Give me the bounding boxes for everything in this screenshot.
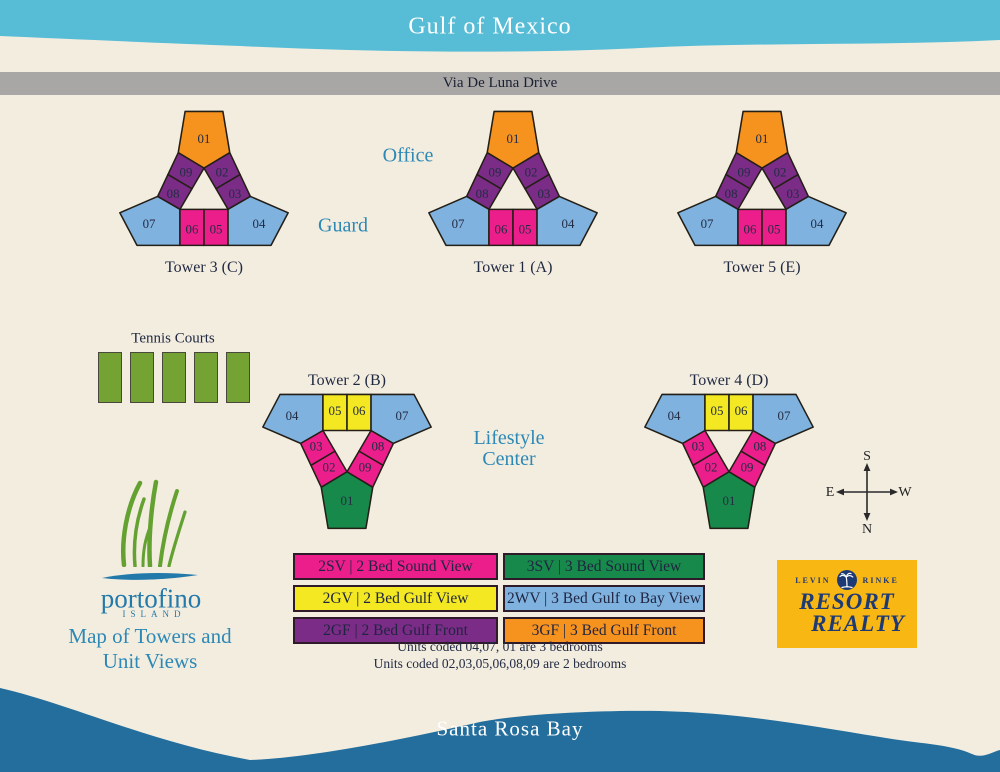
tower-name: Tower 1 (A) (474, 259, 553, 277)
unit-number: 02 (323, 461, 336, 475)
compass-east: E (826, 485, 835, 500)
unit-number: 09 (741, 461, 754, 475)
unit-number: 03 (310, 439, 323, 453)
unit-number: 01 (198, 132, 211, 146)
unit-number: 06 (495, 222, 508, 236)
tower-footprint: 010203090804050607 (643, 391, 815, 537)
unit-number: 09 (180, 166, 193, 180)
unit-number: 07 (701, 217, 714, 231)
tower-footprint: 010908020307060504 (118, 108, 290, 254)
unit-number: 04 (562, 217, 575, 231)
palm-tree-icon (836, 569, 858, 591)
unit-number: 05 (768, 222, 781, 236)
tower-name: Tower 2 (B) (308, 372, 386, 390)
unit-number: 09 (738, 166, 751, 180)
lifestyle-center-label: Lifestyle Center (473, 428, 544, 470)
gulf-of-mexico-label: Gulf of Mexico (408, 14, 571, 41)
unit-number: 03 (692, 439, 705, 453)
tower-footprint: 010908020307060504 (676, 108, 848, 254)
unit-number: 05 (329, 404, 342, 418)
unit-number: 01 (341, 494, 354, 508)
unit-number: 07 (452, 217, 465, 231)
resort-realty-logo: LEVIN RINKE RESORT REALTY (777, 560, 917, 648)
unit-number: 08 (371, 439, 384, 453)
guard-label: Guard (318, 215, 368, 238)
unit-number: 04 (811, 217, 824, 231)
unit-number: 03 (228, 187, 241, 201)
office-label: Office (383, 145, 434, 168)
unit-number: 04 (286, 409, 299, 423)
lifestyle-line2: Center (473, 449, 544, 470)
legend-entry-2wv: 2WV | 3 Bed Gulf to Bay View (503, 585, 705, 612)
tennis-court (194, 352, 218, 403)
tower-footprint: 010203090804050607 (261, 391, 433, 537)
unit-number: 01 (507, 132, 520, 146)
realty-levin: LEVIN (795, 576, 830, 585)
sea-grass-icon (113, 479, 187, 567)
unit-number: 07 (778, 409, 791, 423)
unit-number: 04 (668, 409, 681, 423)
legend-entry-3sv: 3SV | 3 Bed Sound View (503, 553, 705, 580)
road-bar: Via De Luna Drive (0, 72, 1000, 95)
tennis-court (130, 352, 154, 403)
unit-number: 03 (786, 187, 799, 201)
unit-number: 08 (476, 187, 489, 201)
tower-1-a: 010908020307060504 Tower 1 (A) (427, 108, 599, 277)
tower-name: Tower 3 (C) (165, 259, 243, 277)
tower-units-svg: 010908020307060504 (427, 108, 599, 254)
compass-west: W (898, 485, 912, 500)
unit-number: 05 (519, 222, 532, 236)
unit-number: 05 (210, 222, 223, 236)
tower-5-e: 010908020307060504 Tower 5 (E) (676, 108, 848, 277)
unit-number: 07 (396, 409, 409, 423)
tower-units-svg: 010203090804050607 (261, 391, 433, 537)
unit-number: 03 (537, 187, 550, 201)
unit-number: 08 (725, 187, 738, 201)
tower-units-svg: 010908020307060504 (118, 108, 290, 254)
tower-4-d: 010203090804050607 Tower 4 (D) (643, 372, 815, 537)
unit-number: 06 (735, 404, 748, 418)
realty-rinke: RINKE (863, 576, 899, 585)
legend-column-right: 3SV | 3 Bed Sound View2WV | 3 Bed Gulf t… (503, 553, 705, 644)
unit-number: 06 (744, 222, 757, 236)
unit-number: 06 (353, 404, 366, 418)
tennis-courts (98, 352, 250, 403)
tennis-court (226, 352, 250, 403)
legend-entry-2gv: 2GV | 2 Bed Gulf View (293, 585, 498, 612)
unit-number: 09 (359, 461, 372, 475)
realty-realty-text: REALTY (789, 613, 905, 634)
road-label: Via De Luna Drive (0, 72, 1000, 95)
unit-number: 04 (253, 217, 266, 231)
compass-north: N (862, 522, 872, 536)
compass-cross (843, 470, 891, 514)
portofino-island-sub: ISLAND (123, 609, 186, 619)
tower-2-b: 010203090804050607 Tower 2 (B) (261, 372, 433, 537)
unit-number: 02 (216, 166, 229, 180)
tower-name: Tower 5 (E) (723, 259, 800, 277)
legend-entry-2sv: 2SV | 2 Bed Sound View (293, 553, 498, 580)
tennis-courts-label: Tennis Courts (131, 331, 215, 348)
realty-logo-top-row: LEVIN RINKE (795, 569, 899, 591)
unit-number: 05 (711, 404, 724, 418)
tennis-court (162, 352, 186, 403)
unit-number: 07 (143, 217, 156, 231)
unit-number: 01 (756, 132, 769, 146)
unit-number: 02 (774, 166, 787, 180)
unit-number: 08 (753, 439, 766, 453)
tower-units-svg: 010203090804050607 (643, 391, 815, 537)
tower-footprint: 010908020307060504 (427, 108, 599, 254)
lifestyle-line1: Lifestyle (473, 428, 544, 449)
unit-number: 09 (489, 166, 502, 180)
santa-rosa-bay-label: Santa Rosa Bay (437, 717, 584, 742)
unit-number: 06 (186, 222, 199, 236)
unit-number: 01 (723, 494, 736, 508)
realty-resort-text: RESORT (799, 591, 894, 612)
resort-map-page: Gulf of Mexico Via De Luna Drive 0109080… (0, 0, 1000, 772)
tennis-court (98, 352, 122, 403)
tower-name: Tower 4 (D) (690, 372, 769, 390)
tower-units-svg: 010908020307060504 (676, 108, 848, 254)
unit-number: 02 (705, 461, 718, 475)
compass-south: S (863, 449, 871, 464)
unit-number: 02 (525, 166, 538, 180)
logo-swoosh (100, 570, 200, 583)
tower-3-c: 010908020307060504 Tower 3 (C) (118, 108, 290, 277)
bay-water (0, 640, 1000, 772)
unit-number: 08 (167, 187, 180, 201)
legend-column-left: 2SV | 2 Bed Sound View2GV | 2 Bed Gulf V… (293, 553, 498, 644)
compass-rose: S N E W (822, 446, 912, 536)
